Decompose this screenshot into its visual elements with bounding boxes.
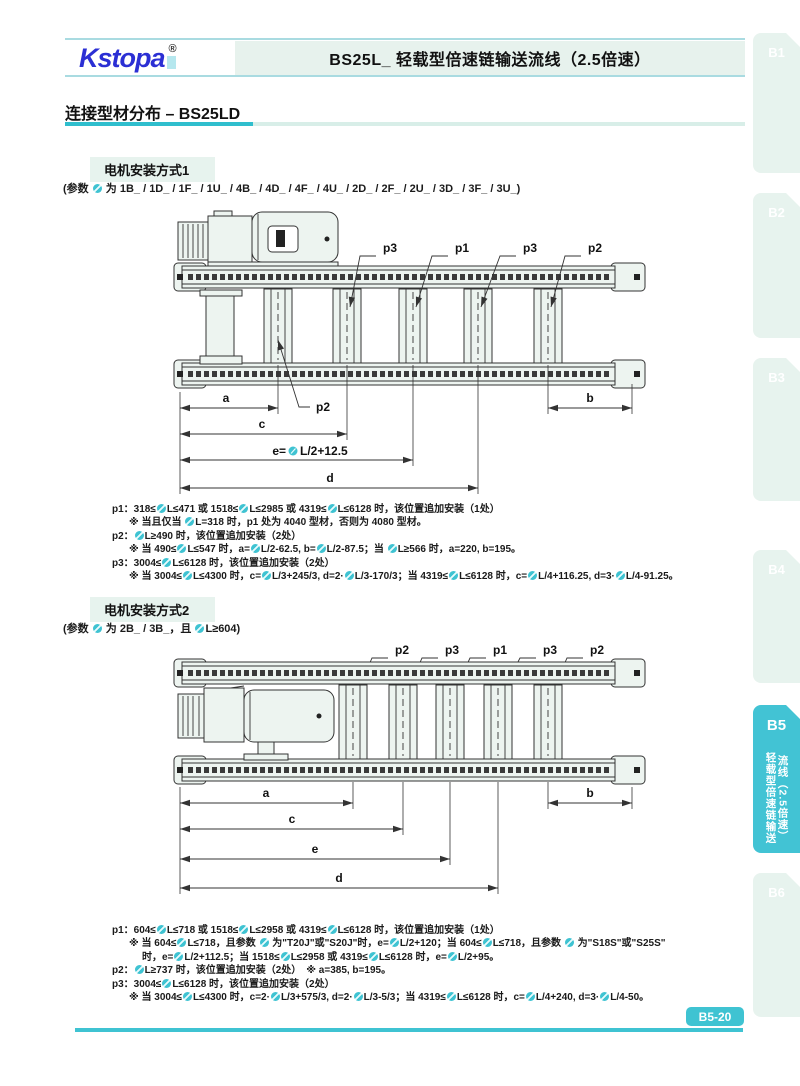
dim-e-suffix: L/2+12.5	[300, 444, 348, 458]
note-line: p1：604≤L≤718 或 1518≤L≤2958 或 4319≤L≤6128…	[112, 924, 665, 937]
sidebar-tab-b3[interactable]: B3	[753, 358, 800, 501]
note-line: p3：3004≤L≤6128 时，该位置追加安装（2处）	[112, 978, 665, 991]
label-p1: p1	[493, 643, 507, 657]
section1-params-line: (参数 为 1B_ / 1D_ / 1F_ / 1U_ / 4B_ / 4D_ …	[63, 180, 520, 196]
tab-label: B5	[753, 717, 800, 734]
note-line: p2：L≥490 时，该位置追加安装（2处）	[112, 530, 679, 543]
param-circle-icon	[616, 571, 625, 580]
dim-c: c	[289, 812, 296, 826]
param-circle-icon	[157, 504, 166, 513]
dim-d: d	[335, 871, 342, 885]
tab-vtext-left-column: 轻载型倍速链输送	[765, 742, 777, 854]
registered-trademark-icon: ®	[169, 43, 177, 55]
note-line: p2：L≥737 时，该位置追加安装（2处） ※ a=385, b=195。	[112, 964, 665, 977]
param-circle-icon	[388, 544, 397, 553]
header-title: BS25L_ 轻载型倍速链输送流线（2.5倍速）	[329, 46, 650, 70]
param-circle-icon	[328, 504, 337, 513]
label-p1: p1	[455, 241, 469, 255]
kstopa-logo: Kstopa	[79, 43, 165, 74]
page-number-badge: B5-20	[686, 1007, 744, 1026]
note-line: ※ 当 604≤L≤718，且参数 为"T20J"或"S20J"时，e=L/2+…	[129, 937, 665, 950]
section2-heading: 电机安装方式2	[90, 597, 215, 622]
param-circle-icon	[183, 992, 192, 1001]
param-circle-icon	[262, 571, 271, 580]
dim-b: b	[586, 786, 593, 800]
param-circle-icon	[271, 992, 280, 1001]
note-line: p1：318≤L≤471 或 1518≤L≤2985 或 4319≤L≤6128…	[112, 503, 679, 516]
logo-accent-block: ®	[167, 43, 183, 73]
dim-e: e	[312, 842, 319, 856]
param-circle-icon	[448, 952, 457, 961]
tab-label: B2	[753, 205, 800, 220]
param-circle-icon	[162, 979, 171, 988]
title-underline-light	[253, 122, 745, 126]
param-circle-icon	[369, 952, 378, 961]
diagram-motor-mount-1: p3 p1 p3 p2 p2 a b c e=	[172, 210, 650, 502]
tab-vtext-right-column: 流线（2.5倍速）	[777, 742, 789, 854]
logo-cyan-square	[167, 56, 176, 69]
param-circle-icon	[195, 624, 204, 633]
param-circle-icon	[317, 544, 326, 553]
footer-rule	[75, 1028, 743, 1032]
tab-label: B3	[753, 370, 800, 385]
dim-c: c	[259, 417, 266, 431]
note-line: ※ 当 3004≤L≤4300 时，c=L/3+245/3, d=2·L/3-1…	[129, 570, 679, 583]
tab-vertical-text: 流线（2.5倍速） 轻载型倍速链输送	[765, 742, 789, 854]
tab-label: B1	[753, 45, 800, 60]
sidebar-tab-b5-active[interactable]: B5 流线（2.5倍速） 轻载型倍速链输送	[753, 705, 800, 853]
param-circle-icon	[251, 544, 260, 553]
label-p2-bottom: p2	[316, 400, 330, 414]
param-circle-icon	[483, 938, 492, 947]
brand-logo: Kstopa ®	[65, 41, 235, 75]
param-circle-icon	[345, 571, 354, 580]
label-p2: p2	[590, 643, 604, 657]
param-circle-icon	[528, 571, 537, 580]
sidebar-tab-b6[interactable]: B6	[753, 873, 800, 1017]
header-top-rule	[65, 38, 745, 40]
label-p2: p2	[395, 643, 409, 657]
param-circle-icon	[354, 992, 363, 1001]
dim-a: a	[223, 391, 230, 405]
param-circle-icon	[447, 992, 456, 1001]
param-circle-icon	[93, 624, 102, 633]
param-circle-icon	[449, 571, 458, 580]
param-circle-icon	[177, 544, 186, 553]
param-circle-icon	[526, 992, 535, 1001]
page-title: 连接型材分布 – BS25LD	[65, 100, 240, 124]
param-circle-icon	[600, 992, 609, 1001]
param-circle-icon	[390, 938, 399, 947]
diagram-motor-mount-2: p2 p3 p1 p3 p2	[172, 640, 650, 902]
label-p3: p3	[383, 241, 397, 255]
sidebar-tab-b4[interactable]: B4	[753, 550, 800, 683]
dim-a: a	[263, 786, 270, 800]
catalog-page: Kstopa ® BS25L_ 轻载型倍速链输送流线（2.5倍速） B1 B2 …	[0, 0, 800, 1086]
dim-e-prefix: e=	[272, 444, 286, 458]
param-circle-icon	[93, 184, 102, 193]
param-circle-icon	[162, 558, 171, 567]
motor-drive-unit	[178, 686, 334, 760]
note-line: p3：3004≤L≤6128 时，该位置追加安装（2处）	[112, 557, 679, 570]
param-circle-icon	[135, 965, 144, 974]
param-circle-icon	[328, 925, 337, 934]
title-underline-accent	[65, 122, 253, 126]
header-title-bar: BS25L_ 轻载型倍速链输送流线（2.5倍速）	[235, 41, 745, 75]
drive-support-column	[200, 290, 242, 364]
note-line: ※ 当 3004≤L≤4300 时，c=2·L/3+575/3, d=2·L/3…	[129, 991, 665, 1004]
param-circle-icon	[565, 938, 574, 947]
param-circle-icon	[260, 938, 269, 947]
note-line: ※ 当且仅当 L=318 时，p1 处为 4040 型材，否则为 4080 型材…	[129, 516, 679, 529]
param-circle-icon	[239, 504, 248, 513]
sidebar-tab-b1[interactable]: B1	[753, 33, 800, 173]
tab-label: B6	[753, 885, 800, 900]
param-circle-icon	[183, 571, 192, 580]
label-p2: p2	[588, 241, 602, 255]
section2-params-line: (参数 为 2B_ / 3B_，且 L≥604)	[63, 620, 240, 636]
label-p3: p3	[445, 643, 459, 657]
notes-method1: p1：318≤L≤471 或 1518≤L≤2985 或 4319≤L≤6128…	[112, 503, 679, 583]
param-circle-icon	[185, 517, 194, 526]
label-p3: p3	[523, 241, 537, 255]
dim-d: d	[326, 471, 333, 485]
header: Kstopa ® BS25L_ 轻载型倍速链输送流线（2.5倍速）	[65, 41, 745, 75]
param-circle-icon	[174, 952, 183, 961]
section1-heading: 电机安装方式1	[90, 157, 215, 182]
param-circle-icon	[135, 531, 144, 540]
header-bottom-rule	[65, 75, 745, 77]
note-line: 时，e=L/2+112.5；当 1518≤L≤2958 或 4319≤L≤612…	[142, 951, 665, 964]
param-circle-icon	[281, 952, 290, 961]
note-line: ※ 当 490≤L≤547 时，a=L/2-62.5, b=L/2-87.5；当…	[129, 543, 679, 556]
tab-label: B4	[753, 562, 800, 577]
sidebar-tab-b2[interactable]: B2	[753, 193, 800, 338]
dim-b: b	[586, 391, 593, 405]
motor-drive-unit	[178, 211, 338, 267]
dimension-lines: a b c e d	[180, 782, 632, 894]
param-circle-icon	[177, 938, 186, 947]
notes-method2: p1：604≤L≤718 或 1518≤L≤2958 或 4319≤L≤6128…	[112, 924, 665, 1004]
param-circle-icon	[157, 925, 166, 934]
param-circle-icon	[239, 925, 248, 934]
label-p3: p3	[543, 643, 557, 657]
